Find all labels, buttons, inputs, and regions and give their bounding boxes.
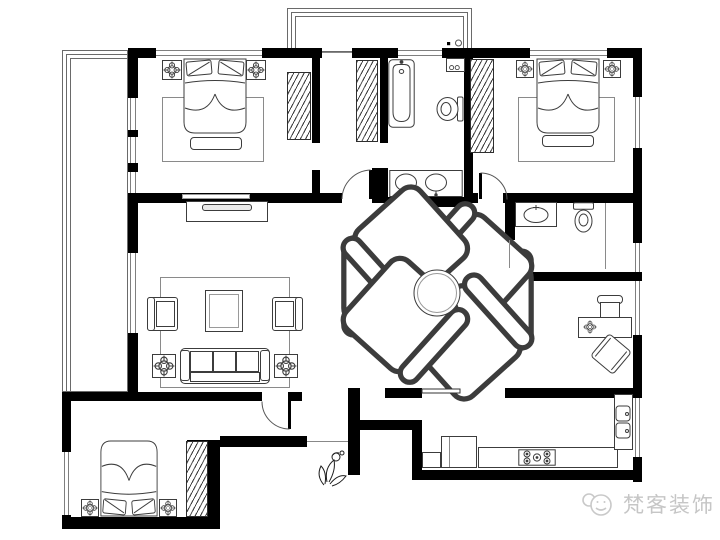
door-arc xyxy=(342,170,371,199)
drain-mark xyxy=(447,42,450,45)
sliding-door-panel xyxy=(422,389,460,393)
drain-circle xyxy=(456,40,462,46)
door-arc xyxy=(262,402,290,430)
watermark: 梵客装饰 xyxy=(580,487,715,521)
floor-plan: 梵客装饰 xyxy=(0,0,720,540)
doors-overlay xyxy=(0,0,720,540)
watermark-text: 梵客装饰 xyxy=(623,489,715,519)
chat-faces-logo-icon xyxy=(580,487,616,521)
door-arc xyxy=(481,173,508,200)
